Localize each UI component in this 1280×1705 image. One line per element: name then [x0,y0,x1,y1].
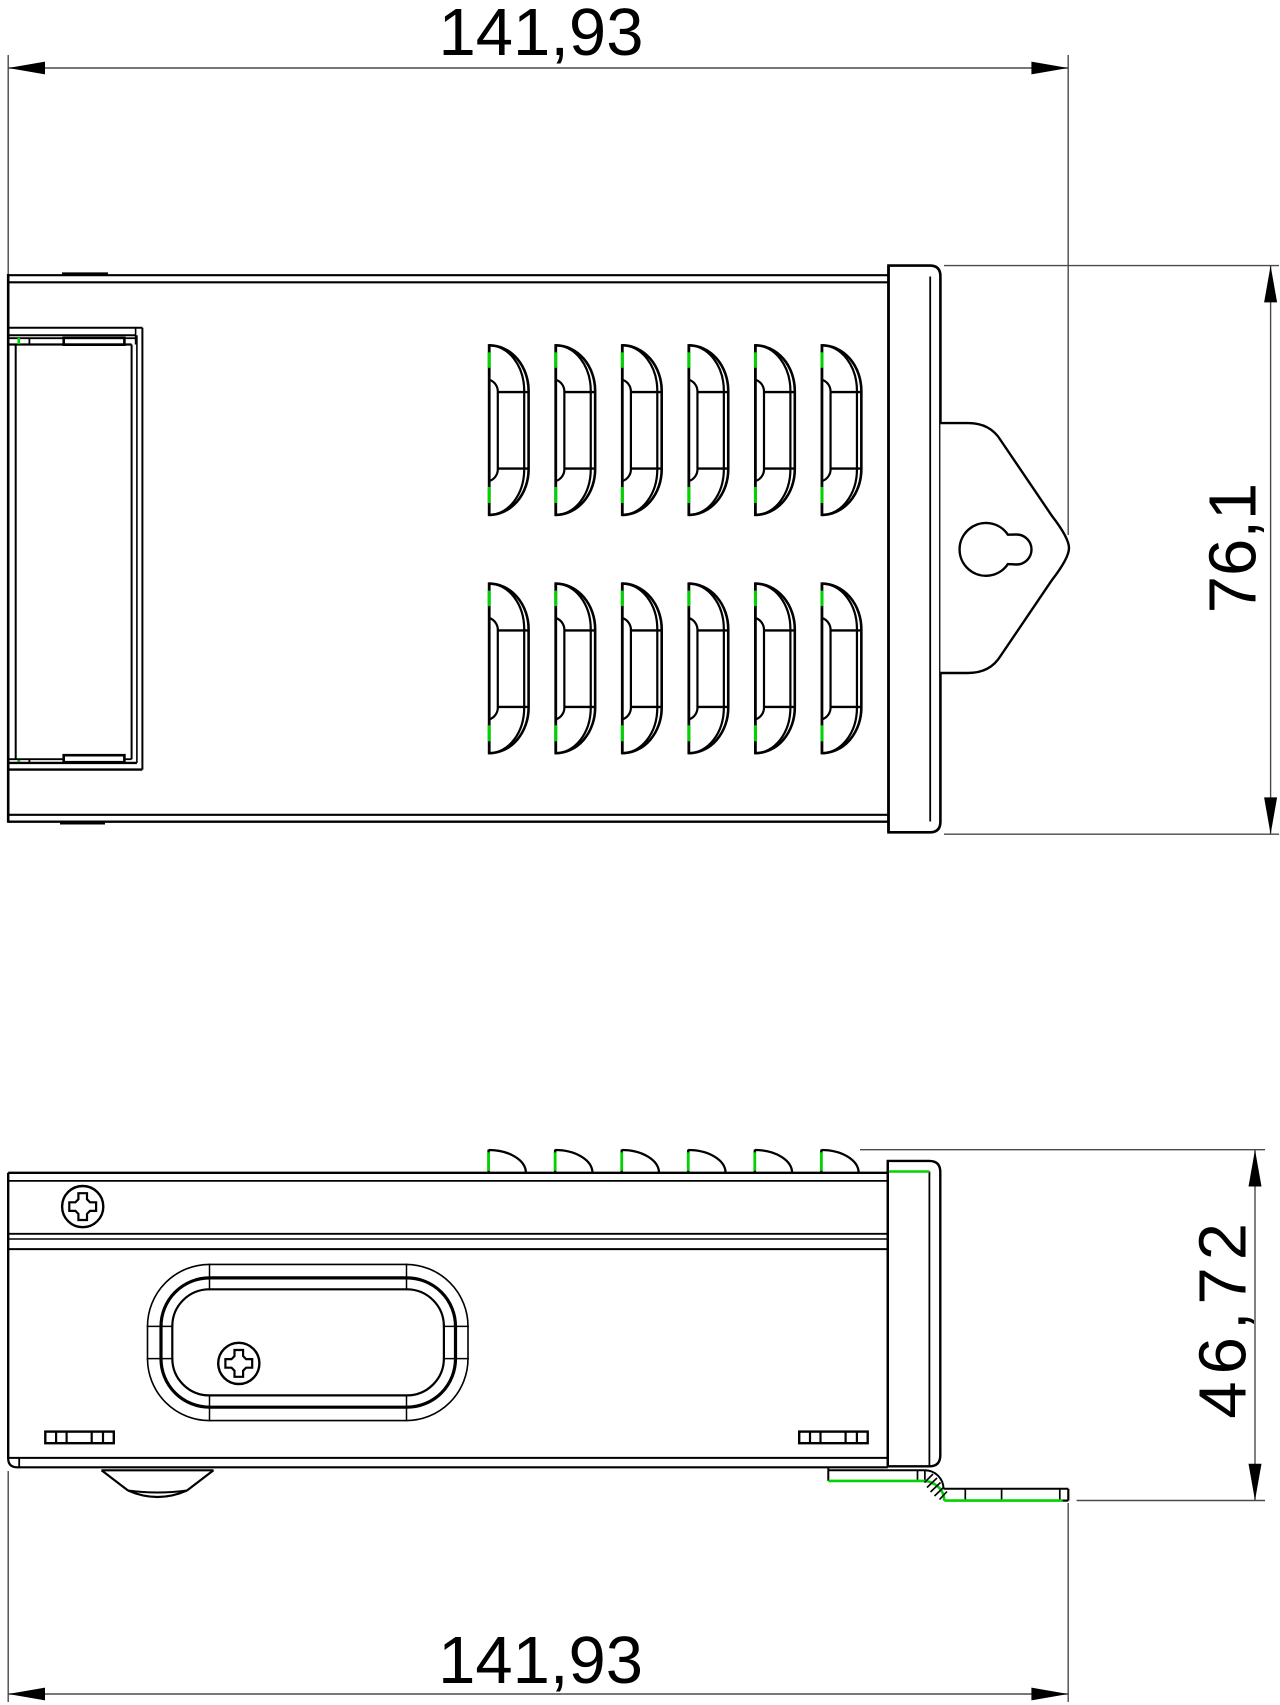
svg-text:46,72: 46,72 [1186,1216,1261,1419]
svg-text:141,93: 141,93 [438,1623,643,1698]
svg-text:141,93: 141,93 [439,0,644,70]
svg-text:76,1: 76,1 [1196,483,1271,613]
